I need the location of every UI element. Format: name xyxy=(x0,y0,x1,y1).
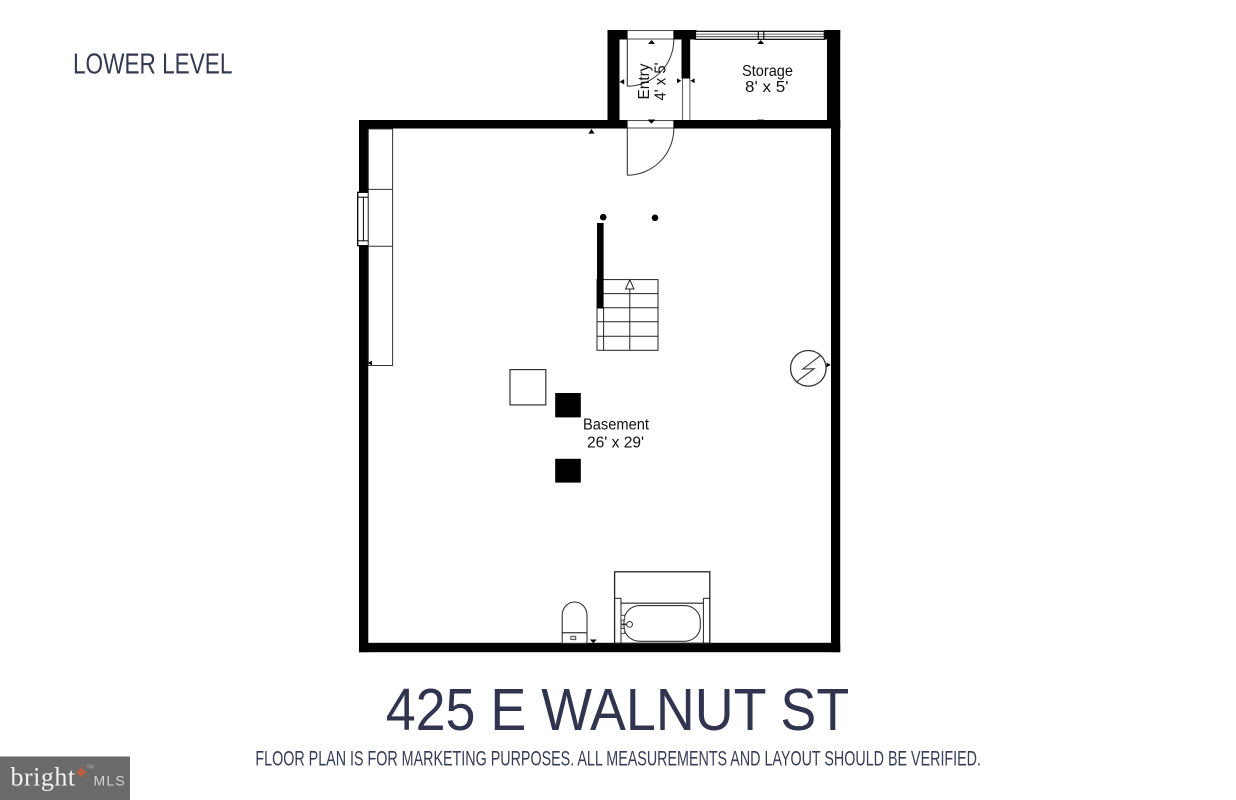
svg-text:8' x 5': 8' x 5' xyxy=(745,79,789,96)
svg-text:425 E WALNUT ST: 425 E WALNUT ST xyxy=(386,677,850,743)
svg-text:TM: TM xyxy=(87,765,94,771)
svg-text:Entry: Entry xyxy=(636,63,653,99)
svg-text:LOWER LEVEL: LOWER LEVEL xyxy=(73,49,232,81)
svg-text:26' x 29': 26' x 29' xyxy=(587,434,644,451)
svg-text:FLOOR PLAN IS FOR MARKETING PU: FLOOR PLAN IS FOR MARKETING PURPOSES. AL… xyxy=(255,748,981,771)
svg-text:MLS: MLS xyxy=(94,773,126,789)
svg-text:4' x 5': 4' x 5' xyxy=(652,62,669,100)
svg-text:Basement: Basement xyxy=(583,417,650,434)
svg-text:Storage: Storage xyxy=(742,63,793,80)
svg-text:bright: bright xyxy=(11,763,76,792)
